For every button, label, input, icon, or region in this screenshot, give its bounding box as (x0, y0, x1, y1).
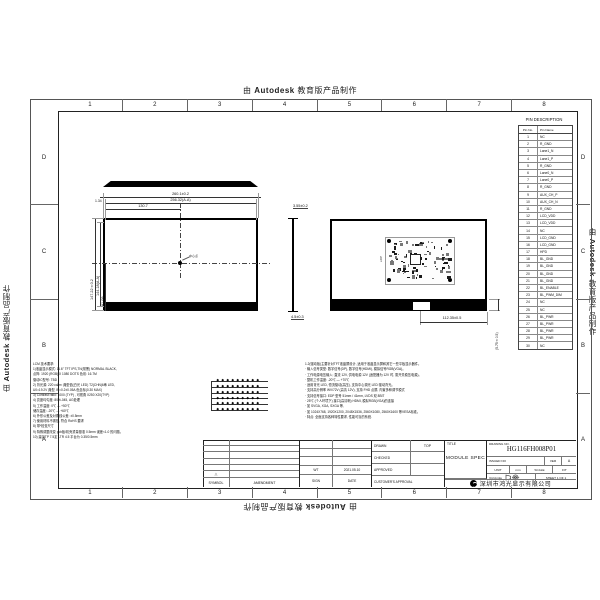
watermark-bottom: 由 Autodesk 教育版产品制作 (180, 501, 420, 512)
pcb-component (406, 271, 409, 272)
pin-name: R_GND (538, 142, 572, 146)
led-symbol: ◆ (236, 408, 239, 411)
pin-number: 20 (519, 271, 538, 277)
pin-table-row: 6Lane0_N (519, 169, 572, 176)
led-symbol: ◆ (236, 397, 239, 400)
signoff-row-drawn: DRAWNTOP (372, 440, 444, 451)
pcb-component (412, 271, 414, 274)
revision-row (300, 448, 371, 457)
led-symbol: ◆ (256, 391, 259, 394)
pin-name: R_GND (538, 207, 572, 211)
border-column-number: 3 (187, 99, 252, 111)
led-symbol: ◆ (241, 402, 244, 405)
pcb-component (392, 251, 394, 253)
pcb-component (417, 274, 418, 276)
border-column-number: 7 (446, 487, 511, 498)
title-cell: TITLE MODULE SPEC (445, 440, 487, 479)
led-symbol: ◆ (251, 402, 254, 405)
led-symbol: ◆ (231, 402, 234, 405)
pin-number: 3 (519, 148, 538, 154)
dim-center-y: 81.09 (101, 270, 105, 306)
extension-line (97, 222, 104, 223)
pin-number: 8 (519, 184, 538, 190)
border-row-letter: B (576, 299, 590, 393)
pin-number: 12 (519, 213, 538, 219)
pcb-component (443, 263, 444, 264)
led-symbol: ◆ (246, 397, 249, 400)
led-circuit-bus-line (211, 381, 212, 410)
pin-number: 18 (519, 256, 538, 262)
unit-label: UNIT (487, 466, 509, 473)
pcb-component (395, 258, 398, 259)
extension-line (258, 193, 259, 218)
drawn-value: TOP (411, 440, 444, 451)
pcb-component (419, 275, 422, 277)
pin-table-row: 20BL_GND (519, 270, 572, 277)
led-symbol: ◆ (246, 385, 249, 388)
led-symbol: ◆ (221, 391, 224, 394)
led-symbol: ◆ (246, 391, 249, 394)
led-symbol: ◆ (256, 397, 259, 400)
pin-table-title: PIN DESCRIPTION (514, 117, 574, 122)
signoff-table: DRAWNTOP CHECKED APPROVED CUSTOMER'S APP… (372, 440, 445, 487)
pin-number: 25 (519, 307, 538, 313)
pin-name: LCD_VDD (538, 214, 572, 218)
led-symbol: ◆ (216, 379, 219, 382)
checked-value (411, 452, 444, 463)
border-column-number: 5 (317, 487, 382, 498)
led-symbol: ◆ (251, 397, 254, 400)
pin-number: 24 (519, 299, 538, 305)
extension-line (97, 306, 104, 307)
pin-number: 22 (519, 285, 538, 291)
pin-number: 6 (519, 170, 538, 176)
led-string-row: ◆◆◆◆◆◆◆◆◆ (214, 402, 268, 406)
watermark-text: 教育版产品制作 (2, 285, 11, 344)
border-column-numbers-top: 12345678 (58, 99, 576, 111)
pin-number: 5 (519, 163, 538, 169)
pcb-component (424, 266, 426, 267)
pcb-component (415, 244, 419, 246)
note-line: 10) 建议TP 7.5定 LTR 4.5 平台为 0.35/0.5mm (33, 435, 208, 440)
approved-value (411, 464, 444, 475)
pcb-component (389, 255, 392, 257)
amendment-header-row: SYMBOLAMENDMENT (203, 477, 299, 487)
pin-name: LCD_VDD (538, 221, 572, 225)
sign-value: WT (300, 466, 333, 474)
drawing-no-row: DRAWING NO. HG116FH008P01 (487, 440, 576, 456)
date-value: 2021.05.10 (333, 466, 371, 474)
pin-name: LCD_GND (538, 243, 572, 247)
led-symbol: ◆ (246, 379, 249, 382)
dimension-line (105, 263, 106, 311)
amendment-row: △ (203, 470, 299, 477)
pin-name: BL_GND (538, 279, 572, 283)
pcb-component (449, 242, 450, 244)
revision-cell (333, 440, 371, 448)
pcb-component (398, 254, 399, 256)
pcb-component (448, 265, 450, 267)
revision-cell (333, 457, 371, 465)
border-column-numbers-bottom: 12345678 (58, 487, 576, 498)
led-symbol: ◆ (256, 402, 259, 405)
dim-active-width: 256.32(A.A) (105, 198, 256, 202)
pin-number: 15 (519, 235, 538, 241)
pin-name: HPD (538, 250, 572, 254)
led-string-row: ◆◆◆◆◆◆◆◆◆ (214, 396, 268, 400)
pin-table-row: 25NC (519, 306, 572, 313)
border-row-letter: A (576, 393, 590, 487)
border-row-letter: C (30, 204, 58, 298)
led-symbol: ◆ (216, 385, 219, 388)
pin-number: 16 (519, 242, 538, 248)
led-symbol: ◆ (241, 391, 244, 394)
driver-pcb: eDP (385, 237, 455, 285)
pin-name: Lane1_P (538, 157, 572, 161)
led-symbol: ◆ (221, 379, 224, 382)
pcb-component (399, 241, 402, 242)
led-symbol: ◆ (236, 385, 239, 388)
pcb-component (400, 243, 404, 246)
led-symbol: ◆ (241, 397, 244, 400)
pcb-component (393, 269, 395, 271)
pin-number: 30 (519, 342, 538, 348)
pcb-component (447, 276, 451, 279)
sign-label: SIGN (300, 475, 333, 487)
pin-table-header: Pin No. Pin Name (519, 126, 572, 134)
pin-table-row: 4Lane1_P (519, 155, 572, 162)
pcb-component (421, 243, 423, 244)
led-symbol: ◆ (246, 408, 249, 411)
pcb-component (446, 253, 448, 255)
pcb-component (412, 275, 415, 278)
pin-number: 14 (519, 227, 538, 233)
pcb-component (444, 258, 448, 260)
pcb-component (428, 241, 429, 242)
pcb-component (422, 263, 423, 265)
border-row-letter: D (576, 111, 590, 204)
pcb-component (397, 269, 400, 272)
top-edge-profile-view (103, 181, 258, 187)
edp-connector (412, 301, 431, 311)
pcb-component (406, 241, 408, 244)
pin-table-row: 16LCD_GND (519, 241, 572, 248)
technical-notes-right: 1.2(驱动板)主要针对TFT液晶屏设计, 适用于液晶显示屏和其它一些平板显示器… (305, 362, 477, 420)
led-symbol: ◆ (251, 379, 254, 382)
extension-line (105, 199, 106, 220)
pcb-component (426, 246, 428, 248)
revision-cell (300, 449, 333, 457)
watermark-text: 由 (346, 502, 357, 511)
pcb-component (431, 242, 433, 243)
pcb-main-ic (410, 254, 421, 265)
pin-number: 27 (519, 321, 538, 327)
pcb-component (402, 271, 405, 273)
pin-name: AUX_CH_N (538, 200, 572, 204)
dimension-line (420, 322, 487, 323)
revision-sign-strip: WT2021.05.10 SIGNDATE (300, 440, 372, 487)
led-symbol: ◆ (226, 397, 229, 400)
led-symbol: ◆ (231, 397, 234, 400)
issued-no-label: ISSUED NO (487, 457, 544, 465)
revision-cell (333, 449, 371, 457)
signoff-row-approved: APPROVED (372, 463, 444, 475)
dim-edge-offset: 1.34 (95, 199, 102, 203)
pcb-component (434, 246, 436, 249)
led-symbol: ◆ (231, 408, 234, 411)
led-backlight-circuit-diagram: ◆◆◆◆◆◆◆◆◆◆◆◆◆◆◆◆◆◆◆◆◆◆◆◆◆◆◆◆◆◆◆◆◆◆◆◆◆◆◆◆… (214, 379, 268, 412)
pcb-component (425, 258, 427, 260)
extension-line (256, 199, 257, 220)
pin-name: BL_GND (538, 257, 572, 261)
extension-line (92, 310, 104, 311)
pin-number: 9 (519, 192, 538, 198)
pin-name: BL_ENABLE (538, 286, 572, 290)
technical-notes-left: LCM 技术要求:1)液晶显示模式: 11.6" TFT IPS,TN(常黑) … (33, 362, 208, 440)
pin-table-row: 24NC (519, 298, 572, 305)
pcb-component (424, 254, 427, 255)
drawn-label: DRAWN (372, 440, 411, 451)
border-column-number: 6 (381, 487, 446, 498)
pin-table-row: 13LCD_VDD (519, 219, 572, 226)
pin-number: 10 (519, 199, 538, 205)
pin-table-row: 7Lane0_P (519, 176, 572, 183)
led-symbol: ◆ (226, 408, 229, 411)
border-column-number: 1 (58, 487, 122, 498)
led-symbol: ◆ (251, 391, 254, 394)
led-symbol: ◆ (251, 408, 254, 411)
module-spec-title: MODULE SPEC (445, 456, 486, 461)
amendment-table: △ SYMBOLAMENDMENT (203, 440, 300, 487)
pcb-component (446, 244, 448, 245)
side-view-tick (288, 218, 298, 219)
rear-bottom-band (332, 299, 485, 309)
led-symbol: ◆ (226, 385, 229, 388)
pin-table-row: 30NC (519, 341, 572, 348)
border-column-number: 4 (252, 99, 317, 111)
signoff-row-customer: CUSTOMER'S APPROVAL (372, 475, 444, 487)
pcb-component (403, 262, 405, 263)
pin-table-row: 28BL_PWR (519, 327, 572, 334)
pin-name: Lane0_P (538, 178, 572, 182)
pcb-component (432, 278, 435, 280)
pcb-component (427, 251, 429, 252)
ver-value: A (561, 457, 576, 465)
dim-center-x: 130.7 (105, 204, 181, 208)
pin-table-row: 27BL_PWR (519, 320, 572, 327)
border-row-letter: D (30, 111, 58, 204)
note-line: · 特点: 全面支持各种特性要求, 性能可靠的系统. (305, 415, 477, 420)
led-symbol: ◆ (251, 385, 254, 388)
pin-number: 17 (519, 249, 538, 255)
led-string-row: ◆◆◆◆◆◆◆◆◆ (214, 408, 268, 412)
pin-table-row: 9AUX_CH_P (519, 191, 572, 198)
pcb-component (429, 252, 431, 255)
bottom-bezel-band (105, 302, 256, 309)
pcb-component (441, 247, 442, 250)
led-symbol: ◆ (216, 402, 219, 405)
watermark-left: 由 Autodesk 教育版产品制作 (1, 222, 12, 392)
pin-table-rows: 1NC2R_GND3Lane1_N4Lane1_P5R_GND6Lane0_N7… (519, 134, 572, 349)
led-symbol: ◆ (241, 408, 244, 411)
border-column-number: 1 (58, 99, 122, 111)
extension-line (103, 193, 104, 218)
unit-value: mm (509, 466, 526, 473)
dimension-line (498, 299, 499, 311)
issued-no-row: ISSUED NO VER A (487, 456, 576, 465)
revision-cell (300, 440, 333, 448)
symbol-header: SYMBOL (203, 478, 230, 487)
pcb-component (406, 254, 408, 257)
pcb-component (436, 257, 439, 260)
led-symbol: ◆ (216, 408, 219, 411)
side-profile-view (292, 218, 294, 312)
revision-row (300, 456, 371, 465)
side-view-tick (288, 311, 298, 312)
pcb-component (401, 261, 403, 262)
pcb-component (416, 277, 418, 279)
center-mark (178, 261, 182, 265)
pin-name: AUX_CH_P (538, 193, 572, 197)
pin-name: NC (538, 300, 572, 304)
led-symbol: ◆ (241, 379, 244, 382)
border-column-number: 3 (187, 487, 252, 498)
border-row-letter: C (576, 204, 590, 298)
pin-table-row: 17HPD (519, 248, 572, 255)
led-symbol: ◆ (256, 385, 259, 388)
drawing-no-label: DRAWING NO. (489, 442, 510, 446)
led-symbol: ◆ (236, 402, 239, 405)
dimension-line (105, 209, 181, 210)
pcb-component (403, 268, 406, 270)
centerline-horizontal (92, 263, 272, 264)
watermark-text: 由 (243, 86, 254, 95)
pcb-component (407, 277, 410, 278)
led-symbol: ◆ (256, 408, 259, 411)
pcb-component (412, 244, 415, 246)
pcb-component (440, 270, 443, 273)
pin-number: 13 (519, 220, 538, 226)
led-string-row: ◆◆◆◆◆◆◆◆◆ (214, 379, 268, 383)
pcb-component (447, 271, 451, 273)
unit-scale-row: UNIT mm SCALE FIT (487, 465, 576, 473)
border-column-number: 8 (511, 487, 576, 498)
pin-name: R_GND (538, 185, 572, 189)
led-symbol: ◆ (226, 379, 229, 382)
pin-table-row: 12LCD_VDD (519, 212, 572, 219)
pin-table-row: 2R_GND (519, 140, 572, 147)
signoff-row-checked: CHECKED (372, 451, 444, 463)
pin-name: NC (538, 229, 572, 233)
pin-table-row: 26BL_PWR (519, 313, 572, 320)
ver-label: VER (544, 457, 561, 465)
pin-name: Lane1_N (538, 149, 572, 153)
border-column-number: 5 (317, 99, 382, 111)
led-symbol: ◆ (221, 397, 224, 400)
led-symbol: ◆ (226, 391, 229, 394)
pin-table-row: 21BL_GND (519, 277, 572, 284)
scale-label: SCALE (526, 466, 552, 473)
dim-outline-width: 260.1±0.2 (100, 192, 261, 196)
revision-cell (300, 457, 333, 465)
drawing-info-cell: DRAWING NO. HG116FH008P01 ISSUED NO VER … (487, 440, 576, 479)
pin-table-row: 3Lane1_N (519, 147, 572, 154)
dim-connector-position: 112.35±0.5 (413, 316, 491, 320)
autodesk-brand: Autodesk (2, 343, 11, 381)
scale-value: FIT (552, 466, 576, 473)
border-column-number: 7 (446, 99, 511, 111)
pin-name: BL_PWR (538, 315, 572, 319)
dim-active-height: 144.18(A.A) (96, 232, 100, 296)
pcb-component (395, 246, 396, 249)
pin-number: 7 (519, 177, 538, 183)
pin-description-table: Pin No. Pin Name 1NC2R_GND3Lane1_N4Lane1… (518, 125, 573, 350)
pin-number-header: Pin No. (519, 126, 538, 133)
company-logo-icon (470, 480, 477, 487)
border-column-number: 2 (122, 99, 187, 111)
led-symbol: ◆ (231, 385, 234, 388)
pin-number: 1 (519, 134, 538, 140)
pin-name-header: Pin Name (538, 128, 572, 132)
date-label: DATE (333, 475, 371, 487)
pin-name: LCD_GND (538, 236, 572, 240)
led-symbol: ◆ (226, 402, 229, 405)
revision-row (300, 440, 371, 448)
pin-table-row: 15LCD_GND (519, 234, 572, 241)
pin-name: BL_GND (538, 272, 572, 276)
approved-label: APPROVED (372, 464, 411, 475)
autodesk-brand: Autodesk (254, 86, 294, 95)
rear-outline-view: eDP (330, 219, 487, 311)
center-note: 中心点 (189, 254, 198, 258)
watermark-text: 教育版产品制作 (243, 502, 305, 511)
dim-thickness: 3.55±0.2 (293, 204, 308, 209)
title-label: TITLE (447, 442, 456, 446)
pin-table-row: 10AUX_CH_N (519, 198, 572, 205)
pin-table-row: 8R_GND (519, 183, 572, 190)
pin-number: 11 (519, 206, 538, 212)
pcb-component (448, 258, 452, 260)
border-column-number: 8 (511, 99, 576, 111)
pin-name: NC (538, 135, 572, 139)
pin-number: 19 (519, 263, 538, 269)
pin-table-row: 5R_GND (519, 162, 572, 169)
customer-approval-label: CUSTOMER'S APPROVAL (372, 476, 444, 487)
revision-value-row: WT2021.05.10 (300, 465, 371, 474)
border-column-number: 6 (381, 99, 446, 111)
autodesk-brand: Autodesk (305, 502, 345, 511)
pin-number: 26 (519, 314, 538, 320)
pin-name: BL_PWR (538, 322, 572, 326)
pcb-component (416, 269, 418, 272)
border-column-number: 2 (122, 487, 187, 498)
checked-label: CHECKED (372, 452, 411, 463)
led-symbol: ◆ (236, 391, 239, 394)
pin-name: NC (538, 344, 572, 348)
pin-table-row: 11R_GND (519, 205, 572, 212)
pcb-component (434, 261, 437, 264)
border-row-letters-right: DCBA (576, 111, 590, 487)
led-symbol: ◆ (256, 379, 259, 382)
led-symbol: ◆ (221, 402, 224, 405)
led-string-row: ◆◆◆◆◆◆◆◆◆ (214, 391, 268, 395)
pin-name: BL_PWR (538, 336, 572, 340)
pcb-component (442, 267, 444, 270)
pin-number: 28 (519, 328, 538, 334)
led-symbol: ◆ (221, 385, 224, 388)
watermark-text: 教育版产品制作 (295, 86, 357, 95)
pin-table-row: 18BL_GND (519, 255, 572, 262)
